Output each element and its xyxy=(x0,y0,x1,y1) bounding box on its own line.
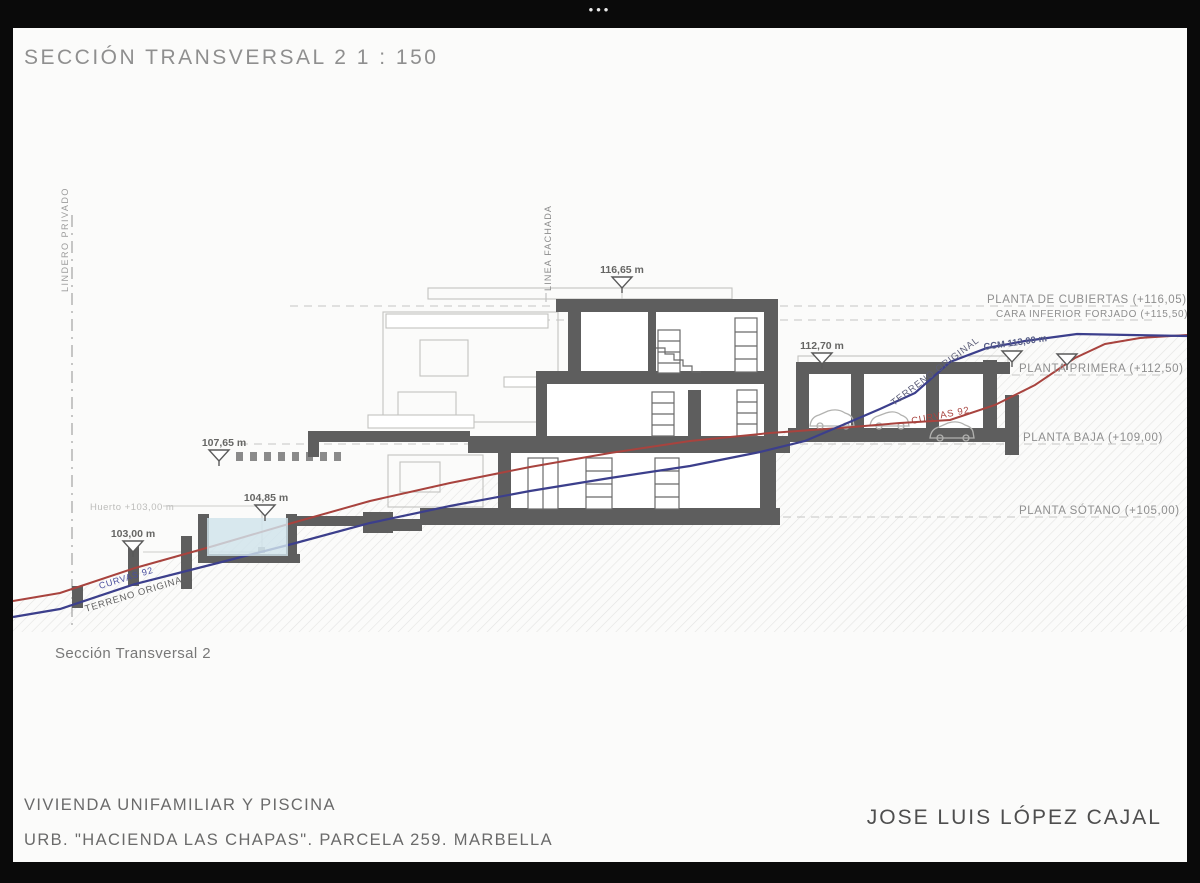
pool-water xyxy=(207,518,288,556)
level-label-primera: PLANTA PRIMERA (+112,50) xyxy=(1019,363,1184,375)
architect-name: JOSE LUIS LÓPEZ CAJAL xyxy=(867,806,1162,830)
blueprint-page: ••• xyxy=(0,0,1200,883)
terrace-elevation-label: 107,65 m xyxy=(202,437,246,449)
level-label-baja: PLANTA BAJA (+109,00) xyxy=(1023,432,1163,444)
pool-elevation-label: 104,85 m xyxy=(244,492,288,504)
garden-elevation-label: 103,00 m xyxy=(111,528,155,540)
project-info: VIVIENDA UNIFAMILIAR Y PISCINA URB. "HAC… xyxy=(24,788,553,858)
garage-roof-elevation-label: 112,70 m xyxy=(800,340,844,352)
sheet-title: SECCIÓN TRANSVERSAL 2 1 : 150 xyxy=(24,46,438,70)
level-label-cara-inferior: CARA INFERIOR FORJADO (+115,50) xyxy=(996,309,1188,320)
roof-elevation-label: 116,65 m xyxy=(600,264,644,276)
project-line2: URB. "HACIENDA LAS CHAPAS". PARCELA 259.… xyxy=(24,823,553,858)
lindero-privado-label: LINDERO PRIVADO xyxy=(60,187,70,292)
level-label-sotano: PLANTA SÓTANO (+105,00) xyxy=(1019,504,1180,517)
section-drawing: 116,65 m 112,70 m 107,65 m 104,85 m 103,… xyxy=(0,0,1200,883)
huerto-label: Huerto +103,00 m xyxy=(90,502,174,513)
level-label-cubiertas: PLANTA DE CUBIERTAS (+116,05) xyxy=(987,294,1187,306)
linea-fachada-label: LINEA FACHADA xyxy=(543,205,553,291)
project-line1: VIVIENDA UNIFAMILIAR Y PISCINA xyxy=(24,788,553,823)
section-caption: Sección Transversal 2 xyxy=(55,645,211,662)
terrace-fence-dashes xyxy=(236,452,341,461)
